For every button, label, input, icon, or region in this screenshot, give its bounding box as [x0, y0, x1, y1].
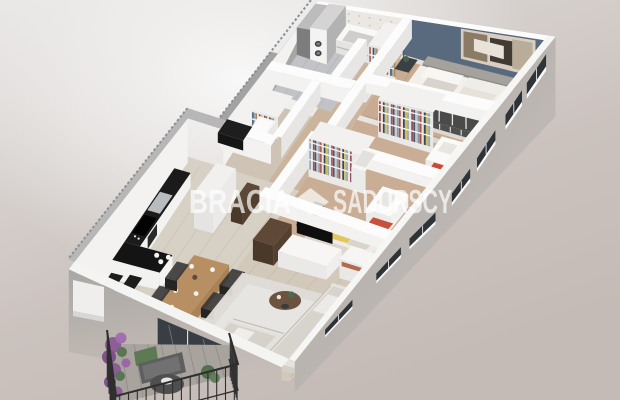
svg-text:BRACIA: BRACIA	[189, 183, 291, 220]
svg-text:SADURSCY: SADURSCY	[333, 183, 452, 220]
